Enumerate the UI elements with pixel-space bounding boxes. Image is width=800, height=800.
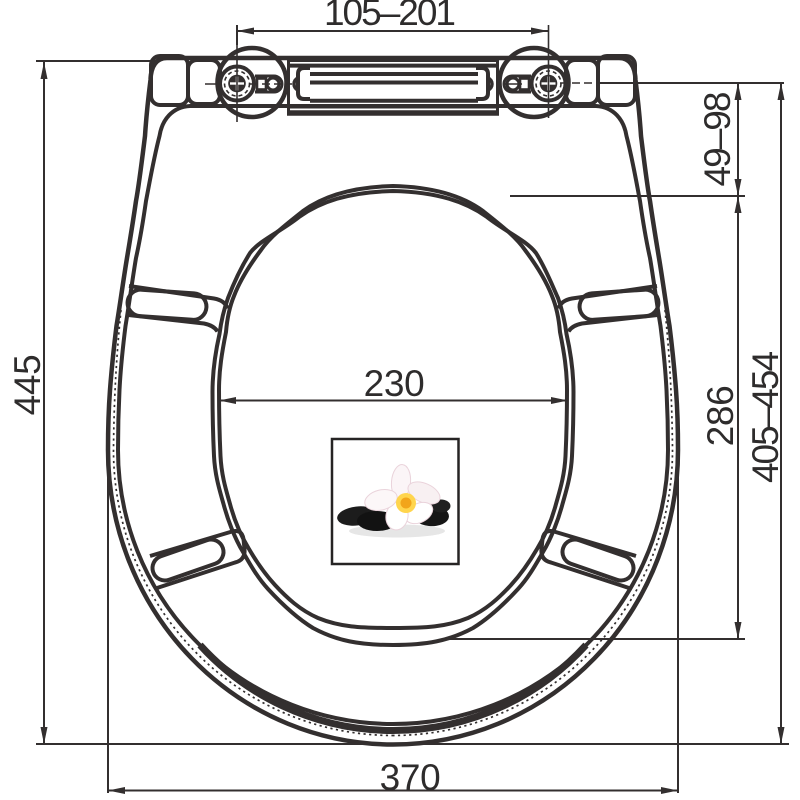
svg-text:405–454: 405–454 xyxy=(745,352,786,483)
svg-text:105–201: 105–201 xyxy=(324,0,454,33)
svg-text:370: 370 xyxy=(380,757,441,798)
svg-text:445: 445 xyxy=(7,355,48,416)
svg-text:49–98: 49–98 xyxy=(697,93,738,186)
svg-text:230: 230 xyxy=(364,363,425,404)
svg-text:286: 286 xyxy=(700,386,741,447)
